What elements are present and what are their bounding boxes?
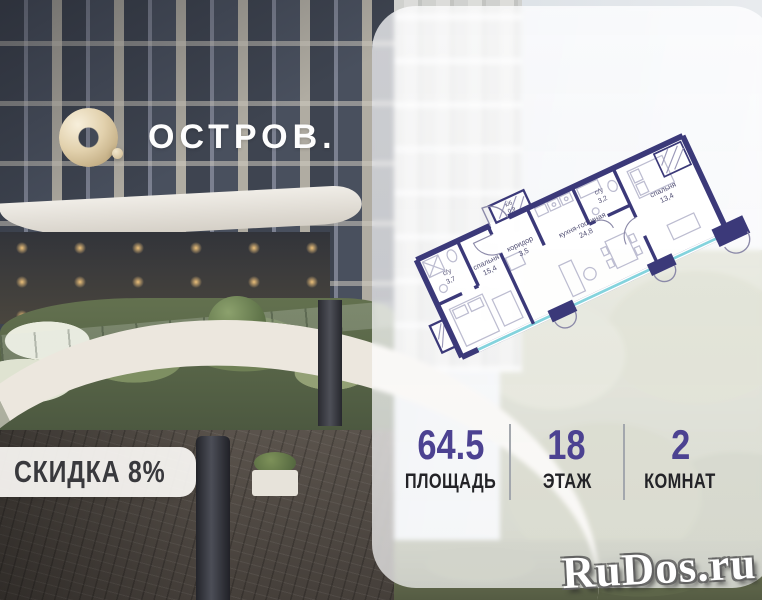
floor-plan: с/у 3,7 спальня 15,4 коридор 3,5 к/б 0,9… xyxy=(376,104,756,380)
stat-floor-value: 18 xyxy=(548,424,586,466)
stat-rooms-label: КОМНАТ xyxy=(644,470,716,494)
discount-badge-label: СКИДКА 8% xyxy=(14,454,166,490)
logo-ring-icon xyxy=(59,108,118,167)
column-photo xyxy=(196,436,230,600)
logo-period-icon xyxy=(112,148,123,159)
stat-floor-label: ЭТАЖ xyxy=(542,470,591,494)
stat-area-value: 64.5 xyxy=(417,424,484,466)
brand-logo: ОСТРОВ. xyxy=(59,108,337,167)
column-photo xyxy=(318,300,342,426)
stat-floor: 18 ЭТАЖ xyxy=(509,424,624,500)
stat-area: 64.5 ПЛОЩАДЬ xyxy=(392,424,509,500)
logo-text: ОСТРОВ. xyxy=(148,118,337,157)
planter-photo xyxy=(252,470,298,496)
stat-rooms: 2 КОМНАТ xyxy=(625,424,736,500)
watermark-text: RuDos.ru xyxy=(560,537,757,599)
stat-area-label: ПЛОЩАДЬ xyxy=(405,470,496,494)
discount-badge: СКИДКА 8% xyxy=(0,447,196,497)
listing-stats: 64.5 ПЛОЩАДЬ 18 ЭТАЖ 2 КОМНАТ xyxy=(392,424,736,500)
stat-rooms-value: 2 xyxy=(671,424,690,466)
ad-poster: ОСТРОВ. xyxy=(0,0,762,600)
